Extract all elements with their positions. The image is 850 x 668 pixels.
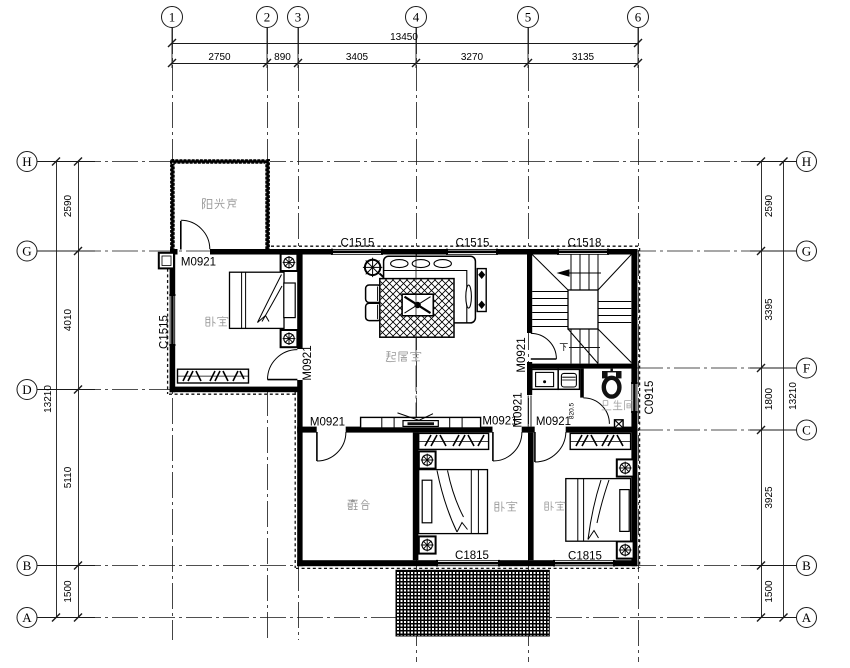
svg-text:3270: 3270: [461, 52, 484, 63]
svg-text:3925: 3925: [764, 486, 775, 509]
svg-text:M0921: M0921: [302, 345, 314, 380]
svg-text:4: 4: [413, 10, 420, 25]
svg-text:3405: 3405: [346, 52, 369, 63]
svg-text:M0921: M0921: [516, 337, 528, 372]
svg-text:B: B: [802, 558, 811, 573]
svg-text:13210: 13210: [43, 385, 54, 413]
svg-text:1: 1: [169, 10, 176, 25]
svg-text:M0921: M0921: [536, 416, 571, 428]
svg-text:6: 6: [635, 10, 642, 25]
svg-text:3: 3: [295, 10, 302, 25]
svg-text:C1515: C1515: [159, 315, 171, 349]
svg-text:F: F: [803, 361, 810, 376]
svg-text:M0921: M0921: [310, 417, 345, 429]
svg-text:H: H: [802, 154, 811, 169]
svg-text:C1515: C1515: [456, 238, 490, 250]
svg-text:1500: 1500: [764, 580, 775, 603]
svg-text:2590: 2590: [63, 194, 74, 217]
svg-text:2: 2: [264, 10, 271, 25]
svg-text:13210: 13210: [788, 382, 799, 410]
svg-text:G: G: [802, 244, 811, 259]
svg-text:M0921: M0921: [181, 257, 216, 269]
svg-text:A: A: [802, 610, 812, 625]
svg-text:890: 890: [274, 52, 291, 63]
svg-text:H: H: [22, 154, 31, 169]
svg-text:G: G: [22, 244, 31, 259]
svg-text:5110: 5110: [63, 466, 74, 488]
svg-text:3395: 3395: [764, 298, 775, 321]
svg-text:1800: 1800: [764, 387, 775, 410]
svg-text:M0921: M0921: [513, 392, 525, 427]
svg-text:5: 5: [525, 10, 532, 25]
svg-text:3135: 3135: [572, 52, 595, 63]
svg-text:C1515: C1515: [341, 238, 375, 250]
svg-text:1500: 1500: [63, 580, 74, 603]
svg-text:B: B: [23, 558, 32, 573]
svg-text:C: C: [802, 423, 811, 438]
svg-text:4010: 4010: [63, 308, 74, 331]
svg-text:D: D: [22, 382, 31, 397]
svg-text:C1518: C1518: [568, 238, 602, 250]
svg-text:C0915: C0915: [644, 381, 656, 415]
svg-text:13450: 13450: [390, 32, 418, 43]
svg-text:C1815: C1815: [455, 550, 489, 562]
svg-text:A: A: [22, 610, 32, 625]
svg-text:C1815: C1815: [568, 551, 602, 563]
svg-text:820.5: 820.5: [569, 402, 576, 419]
svg-text:2750: 2750: [208, 52, 231, 63]
svg-text:2590: 2590: [764, 194, 775, 217]
